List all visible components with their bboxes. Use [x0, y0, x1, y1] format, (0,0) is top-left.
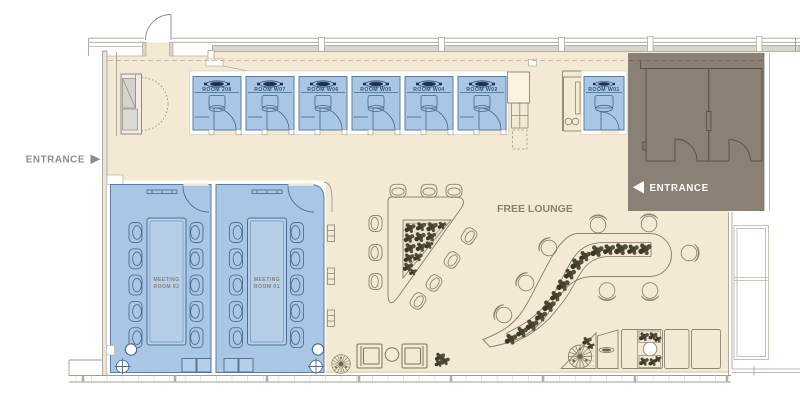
svg-text:ROOM W04: ROOM W04 — [413, 87, 444, 93]
svg-text:ROOM W06: ROOM W06 — [307, 87, 338, 93]
svg-text:ROOM 208: ROOM 208 — [202, 87, 231, 93]
svg-text:ENTRANCE: ENTRANCE — [26, 155, 85, 166]
svg-text:ROOM 02: ROOM 02 — [153, 284, 179, 290]
svg-text:ROOM W02: ROOM W02 — [466, 87, 497, 93]
svg-text:ROOM 01: ROOM 01 — [254, 284, 280, 290]
svg-text:FREE LOUNGE: FREE LOUNGE — [497, 203, 573, 215]
svg-text:ENTRANCE: ENTRANCE — [650, 183, 709, 194]
svg-text:ROOM W05: ROOM W05 — [360, 87, 391, 93]
svg-text:MEETING: MEETING — [254, 277, 280, 283]
svg-text:ROOM W07: ROOM W07 — [254, 87, 285, 93]
svg-text:MEETING: MEETING — [153, 277, 179, 283]
svg-text:ROOM W01: ROOM W01 — [588, 87, 619, 93]
